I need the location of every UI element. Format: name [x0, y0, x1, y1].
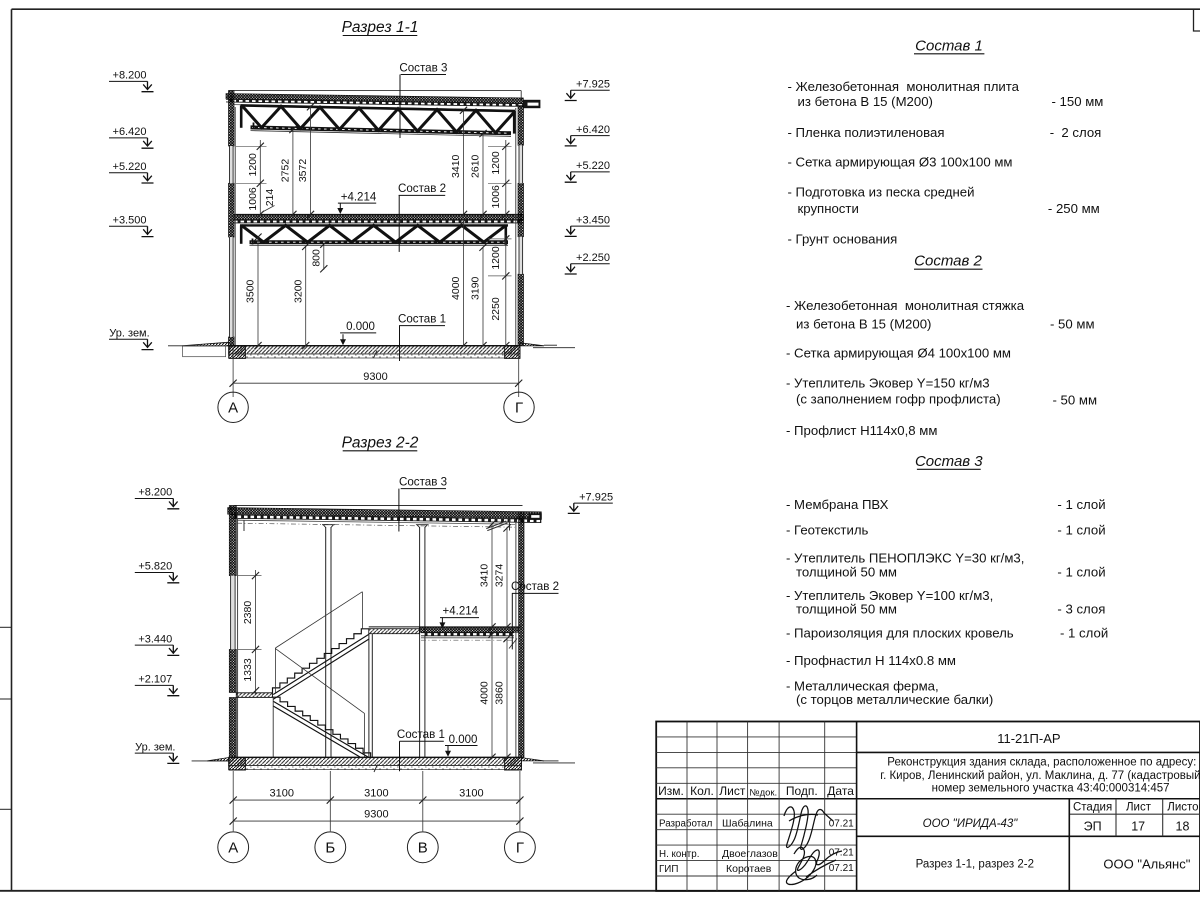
- svg-text:Кол.: Кол.: [690, 784, 714, 798]
- svg-text:- Мембрана ПВХ: - Мембрана ПВХ: [786, 497, 889, 512]
- svg-text:В: В: [418, 840, 428, 857]
- svg-text:- Железобетонная монолитная п: - Железобетонная монолитная плита: [788, 79, 1020, 94]
- svg-text:- 1 слой: - 1 слой: [1057, 523, 1105, 538]
- svg-text:+6.420: +6.420: [113, 126, 147, 138]
- svg-text:- 50 мм: - 50 мм: [1050, 317, 1095, 332]
- svg-text:А: А: [228, 400, 238, 417]
- svg-text:ООО "ИРИДА-43": ООО "ИРИДА-43": [923, 818, 1019, 830]
- svg-text:1200: 1200: [247, 153, 259, 177]
- svg-text:Состав 2: Состав 2: [914, 253, 982, 270]
- svg-text:Состав 3: Состав 3: [399, 61, 447, 74]
- svg-text:Г: Г: [516, 840, 524, 857]
- svg-text:ГИП: ГИП: [659, 864, 678, 875]
- svg-text:- 1 слой: - 1 слой: [1060, 626, 1108, 641]
- svg-text:(с торцов металлические балки): (с торцов металлические балки): [796, 692, 993, 707]
- svg-text:+5.220: +5.220: [113, 161, 147, 173]
- svg-text:2610: 2610: [470, 154, 482, 178]
- svg-text:3274: 3274: [494, 564, 506, 588]
- svg-text:- 3 слоя: - 3 слоя: [1057, 602, 1105, 617]
- svg-text:3190: 3190: [470, 276, 482, 300]
- svg-text:1200: 1200: [490, 246, 502, 270]
- svg-text:3572: 3572: [297, 159, 309, 183]
- svg-text:0.000: 0.000: [449, 734, 478, 746]
- svg-text:Разрез 1-1, разрез 2-2: Разрез 1-1, разрез 2-2: [916, 858, 1034, 870]
- svg-text:1200: 1200: [490, 151, 502, 175]
- svg-text:Состав 2: Состав 2: [511, 580, 559, 593]
- svg-text:Дата: Дата: [827, 784, 854, 798]
- svg-text:Шабалина: Шабалина: [722, 817, 773, 829]
- svg-text:- Профлист Н114х0,8 мм: - Профлист Н114х0,8 мм: [786, 423, 937, 438]
- svg-text:+3.500: +3.500: [113, 215, 147, 227]
- svg-text:Состав 1: Состав 1: [397, 728, 445, 741]
- svg-text:Ур. зем.: Ур. зем.: [109, 328, 149, 340]
- svg-text:Лист: Лист: [719, 784, 746, 798]
- svg-text:+4.214: +4.214: [443, 606, 479, 618]
- svg-text:Ур. зем.: Ур. зем.: [135, 741, 175, 753]
- svg-text:Реконструкция здания склада, р: Реконструкция здания склада, расположенн…: [887, 757, 1196, 769]
- svg-text:+6.420: +6.420: [576, 124, 610, 136]
- svg-text:1333: 1333: [242, 658, 254, 682]
- svg-text:Разрез 2-2: Разрез 2-2: [342, 434, 419, 451]
- svg-text:- Профнастил Н 114х0.8 мм: - Профнастил Н 114х0.8 мм: [786, 653, 956, 668]
- svg-text:номер земельного участка 43:40: номер земельного участка 43:40:000314:45…: [932, 783, 1170, 795]
- svg-text:Разработал: Разработал: [659, 818, 713, 829]
- svg-text:18: 18: [1176, 820, 1190, 834]
- svg-text:3410: 3410: [450, 154, 462, 178]
- svg-text:Стадия: Стадия: [1073, 801, 1112, 813]
- svg-text:из бетона В 15 (М200): из бетона В 15 (М200): [798, 94, 933, 109]
- svg-text:9300: 9300: [364, 809, 388, 821]
- svg-text:2250: 2250: [490, 297, 502, 321]
- svg-text:+3.450: +3.450: [576, 214, 610, 226]
- svg-text:Двоеглазов: Двоеглазов: [722, 848, 778, 860]
- svg-text:- Утеплитель ПЕНОПЛЭКС Y=30 кг: - Утеплитель ПЕНОПЛЭКС Y=30 кг/м3,: [786, 551, 1024, 566]
- svg-text:Состав 1: Состав 1: [915, 37, 983, 54]
- svg-text:07.21: 07.21: [829, 863, 854, 874]
- svg-text:Коротаев: Коротаев: [726, 863, 772, 875]
- svg-text:- Пленка полиэтиленовая: - Пленка полиэтиленовая: [788, 125, 945, 140]
- svg-text:Подп.: Подп.: [786, 784, 818, 798]
- svg-text:- Металлическая ферма,: - Металлическая ферма,: [786, 678, 939, 693]
- svg-text:- Железобетонная монолитная с: - Железобетонная монолитная стяжка: [786, 298, 1025, 313]
- svg-text:3500: 3500: [245, 279, 257, 303]
- svg-text:3100: 3100: [459, 788, 483, 800]
- svg-text:07.21: 07.21: [829, 847, 854, 858]
- svg-text:9300: 9300: [363, 371, 387, 383]
- svg-text:17: 17: [1131, 820, 1145, 834]
- svg-text:+7.925: +7.925: [579, 491, 613, 503]
- svg-text:3100: 3100: [364, 788, 388, 800]
- svg-text:1006: 1006: [490, 185, 502, 209]
- svg-text:800: 800: [311, 249, 323, 267]
- svg-text:- 250 мм: - 250 мм: [1048, 201, 1100, 216]
- svg-text:Состав 2: Состав 2: [398, 182, 446, 195]
- svg-text:- 1 слой: - 1 слой: [1057, 564, 1105, 579]
- svg-text:из бетона В 15 (М200): из бетона В 15 (М200): [796, 317, 931, 332]
- svg-text:- 1 слой: - 1 слой: [1057, 497, 1105, 512]
- svg-text:+5.820: +5.820: [138, 561, 172, 573]
- svg-text:+8.200: +8.200: [138, 487, 172, 499]
- svg-text:Изм.: Изм.: [658, 784, 684, 798]
- svg-text:(с заполнением гофр профлиста): (с заполнением гофр профлиста): [796, 392, 1001, 407]
- svg-text:Разрез 1-1: Разрез 1-1: [342, 19, 419, 36]
- svg-text:- Подготовка из песка средней: - Подготовка из песка средней: [788, 185, 975, 200]
- svg-text:- Грунт основания: - Грунт основания: [788, 232, 898, 247]
- svg-text:- Геотекстиль: - Геотекстиль: [786, 523, 869, 538]
- svg-text:Н. контр.: Н. контр.: [659, 849, 699, 860]
- svg-text:2380: 2380: [242, 601, 254, 625]
- svg-text:крупности: крупности: [798, 201, 859, 216]
- svg-text:- 50 мм: - 50 мм: [1053, 393, 1098, 408]
- svg-text:г. Киров, Ленинский район, ул.: г. Киров, Ленинский район, ул. Маклина, …: [880, 770, 1200, 782]
- svg-text:- 150 мм: - 150 мм: [1052, 94, 1104, 109]
- svg-text:+5.220: +5.220: [576, 160, 610, 172]
- svg-text:4000: 4000: [450, 276, 462, 300]
- svg-text:- 2 слоя: - 2 слоя: [1050, 125, 1102, 140]
- svg-text:+8.200: +8.200: [113, 70, 147, 82]
- svg-text:+4.214: +4.214: [341, 191, 377, 203]
- svg-text:- Сетка армирующая Ø4 100х100: - Сетка армирующая Ø4 100х100 мм: [786, 346, 1011, 361]
- svg-text:3860: 3860: [494, 681, 506, 705]
- svg-text:214: 214: [264, 189, 276, 207]
- svg-text:Состав 3: Состав 3: [915, 453, 983, 470]
- svg-text:толщиной 50 мм: толщиной 50 мм: [796, 564, 897, 579]
- svg-text:+2.107: +2.107: [138, 674, 172, 686]
- svg-text:11-21П-АР: 11-21П-АР: [997, 731, 1060, 746]
- svg-text:Лист: Лист: [1126, 801, 1152, 813]
- svg-text:3100: 3100: [270, 788, 294, 800]
- svg-text:+2.250: +2.250: [576, 252, 610, 264]
- svg-text:Б: Б: [325, 840, 335, 857]
- svg-text:Г: Г: [515, 400, 523, 417]
- svg-text:+7.925: +7.925: [576, 78, 610, 90]
- svg-text:- Утеплитель Эковер Y=100 кг/м: - Утеплитель Эковер Y=100 кг/м3,: [786, 588, 993, 603]
- svg-text:- Утеплитель Эковер Y=150 кг/м: - Утеплитель Эковер Y=150 кг/м3: [786, 376, 990, 391]
- svg-text:Листов: Листов: [1167, 801, 1200, 813]
- svg-text:3410: 3410: [479, 564, 491, 588]
- svg-text:1006: 1006: [247, 187, 259, 211]
- svg-text:4000: 4000: [479, 681, 491, 705]
- svg-text:А: А: [228, 840, 238, 857]
- svg-text:№док.: №док.: [749, 788, 777, 799]
- svg-text:Состав 1: Состав 1: [398, 312, 446, 325]
- svg-text:- Пароизоляция для плоских кро: - Пароизоляция для плоских кровель: [786, 626, 1014, 641]
- svg-text:ЭП: ЭП: [1084, 820, 1102, 834]
- svg-text:3200: 3200: [292, 279, 304, 303]
- svg-text:ООО "Альянс": ООО "Альянс": [1103, 857, 1190, 872]
- svg-text:толщиной 50 мм: толщиной 50 мм: [796, 602, 897, 617]
- svg-text:2752: 2752: [280, 159, 292, 183]
- svg-text:- Сетка армирующая Ø3 100х100: - Сетка армирующая Ø3 100х100 мм: [788, 155, 1013, 170]
- svg-text:0.000: 0.000: [346, 321, 375, 333]
- svg-text:Состав 3: Состав 3: [399, 475, 447, 488]
- svg-text:+3.440: +3.440: [138, 633, 172, 645]
